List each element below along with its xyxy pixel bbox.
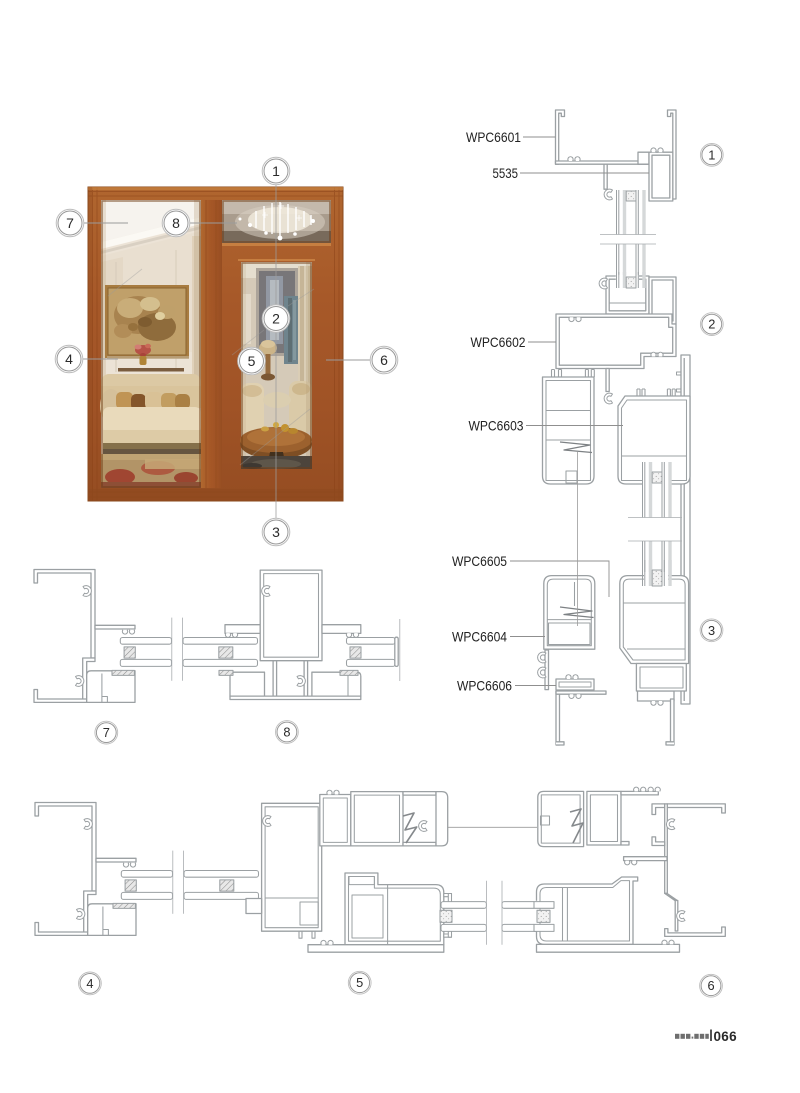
- svg-text:8: 8: [283, 725, 290, 740]
- svg-text:4: 4: [86, 976, 93, 991]
- svg-text:5: 5: [248, 353, 256, 369]
- svg-text:4: 4: [65, 351, 73, 367]
- svg-text:6: 6: [380, 352, 388, 368]
- svg-text:1: 1: [708, 147, 715, 162]
- svg-text:7: 7: [103, 725, 110, 740]
- svg-text:8: 8: [172, 215, 180, 231]
- svg-text:WPC6606: WPC6606: [457, 677, 512, 693]
- svg-text:5535: 5535: [493, 165, 519, 181]
- svg-text:WPC6602: WPC6602: [471, 334, 526, 350]
- svg-text:WPC6603: WPC6603: [469, 417, 524, 433]
- svg-text:6: 6: [707, 978, 714, 993]
- svg-text:3: 3: [708, 623, 715, 638]
- svg-text:7: 7: [66, 215, 74, 231]
- svg-text:2: 2: [708, 317, 715, 332]
- svg-text:3: 3: [272, 524, 280, 540]
- svg-text:066: 066: [714, 1029, 738, 1044]
- svg-text:5: 5: [356, 975, 363, 990]
- svg-text:WPC6601: WPC6601: [466, 129, 521, 145]
- svg-text:1: 1: [272, 163, 280, 179]
- svg-text:WPC6604: WPC6604: [452, 628, 507, 644]
- svg-text:WPC6605: WPC6605: [452, 553, 507, 569]
- svg-text:2: 2: [272, 311, 280, 327]
